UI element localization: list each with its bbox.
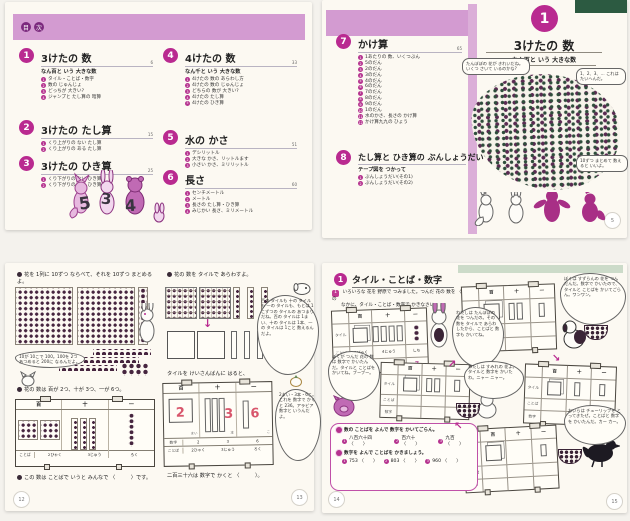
row-label-tile: タイル <box>381 374 398 394</box>
tile-hundreds-cell <box>480 441 507 466</box>
toc-right-and-opener-page: 7 かけ算 65 11あたりの 数、いくつぶん25のだん32のだん43のだん54… <box>322 0 627 238</box>
ten-flower-row-1 <box>93 349 151 355</box>
word-tens: 4じゅう <box>372 344 405 358</box>
digits-label: 数字 <box>164 439 183 445</box>
item-text: 八百六十四 〈 〉 <box>349 435 388 447</box>
exercise-2-label-row: 数字を よんで ことばを かきましょう。 <box>336 450 472 456</box>
toc-item: 2ぶんしょうだい(その2) <box>358 181 466 187</box>
banner-tab <box>40 396 51 402</box>
one-tiles <box>128 413 135 447</box>
ten-tile <box>247 287 254 319</box>
exercise-1-label: 数の ことばを よんで 数字を かいてごらん。 <box>344 427 437 433</box>
section-number-badge: 2 <box>19 120 34 135</box>
scanned-book-collage: 目 次 1 3けたの 数 6 なん百と いう 大きな数 1タイル・ことば・数字2… <box>0 0 630 521</box>
dog-head-illustration <box>293 281 311 295</box>
hundred-flower-grid-2 <box>77 287 135 345</box>
row-label-words: ことば <box>381 393 397 405</box>
col-tens: 十 <box>200 383 236 393</box>
board-tab <box>529 422 540 429</box>
section-page-number: 33 <box>288 60 297 65</box>
toc-header-char-1: 目 <box>21 22 31 32</box>
toc-header-char-2: 次 <box>34 22 44 32</box>
section-number-badge: 8 <box>336 150 351 165</box>
practice-right-page-number: 15 <box>606 493 623 510</box>
tiles-spread-pages: 花を 1列に 10ずつ ならべて、それを 10ずつ まとめるよ。 10が 10こ… <box>5 263 314 511</box>
hundreds-cell: 2 まい <box>163 393 200 438</box>
flower-bullet-icon <box>17 475 22 480</box>
lesson-number-badge: 1 <box>334 273 347 286</box>
word-ones: ろく <box>243 445 273 454</box>
section-number-badge: 4 <box>163 48 178 63</box>
item-text: 百六十 〈 〉 <box>401 435 432 447</box>
section-title: 4けたの 数 <box>185 50 235 65</box>
dandelion-field-illustration <box>470 71 622 192</box>
tile-tens-cell <box>421 375 446 395</box>
practice-left-page-number: 14 <box>328 491 345 508</box>
word-tens: 3じゅう <box>213 446 243 455</box>
hundred-tile <box>40 420 60 440</box>
toc-section-7: 7 かけ算 65 11あたりの 数、いくつぶん25のだん32のだん43のだん54… <box>358 36 462 126</box>
green-corner-block <box>575 0 627 13</box>
se-arrow-icon: ↘ <box>552 353 560 364</box>
toc-section-8: 8 たし算と ひき算の ぶんしょうだい 107 テープ図を つかって 1ぶんしょ… <box>358 152 466 187</box>
item-number-bullet-icon: 7 <box>358 91 363 96</box>
board-leg <box>485 489 491 495</box>
hundred-tile-grid-b <box>199 287 231 319</box>
col-tens: 十 <box>503 285 529 298</box>
section-title: 3けたの たし算 <box>41 122 111 137</box>
tile-hundreds-cell <box>541 377 566 399</box>
item-number-bullet-icon: 4 <box>358 73 363 78</box>
nw-arrow-icon: ↖ <box>454 421 462 432</box>
item-number-bullet-icon: 6 <box>358 85 363 90</box>
unit-ones: こ <box>267 429 270 434</box>
item-text: くり上がりの ある たし算 <box>48 147 101 153</box>
right-page-number: 13 <box>291 489 308 506</box>
speech-bubble-question: たんぽぽの 花が きれいだね。いくつ さいて いるのかな? <box>462 58 530 75</box>
item-number-bullet-icon: 2 <box>358 181 363 186</box>
item-number-bullet-icon: 3 <box>185 203 190 208</box>
word-hundreds: 2ひゃく <box>35 451 75 459</box>
item-number-bullet-icon: 2 <box>394 439 399 444</box>
down-arrow-icon: ↓ <box>203 317 212 330</box>
section-title: かけ算 <box>358 36 388 51</box>
section-page-number: 6 <box>146 60 153 65</box>
section-item-list: 1デシリットル2大きな かさ、リットルます3小さい かさ、ミリリットル <box>185 151 297 169</box>
board-caption: タイルを けいさんばんに はると、 <box>167 371 279 378</box>
section-title-row: 3けたの 数 6 <box>41 50 153 67</box>
hundred-tiles <box>353 327 369 343</box>
board-tab <box>394 359 405 365</box>
footer2-text: 二百三十六は 数字で かくと 〈 〉。 <box>167 473 263 479</box>
item-number-bullet-icon: 3 <box>185 89 190 94</box>
words-label: ことば <box>16 452 35 458</box>
item-number-bullet-icon: 2 <box>41 183 46 188</box>
ten-tile-plain <box>244 331 250 359</box>
toc-section-5: 5 水の かさ 51 1デシリットル2大きな かさ、リットルます3小さい かさ、… <box>185 132 297 169</box>
ten-tile <box>80 418 87 450</box>
tile-ones-cell <box>529 297 555 322</box>
item-number-bullet-icon: 11 <box>358 114 363 119</box>
item-number-bullet-icon: 4 <box>185 95 190 100</box>
section-title-row: たし算と ひき算の ぶんしょうだい 107 <box>358 152 466 165</box>
arabic-numeral-bubble: 2まい・3本・6こ。これを 数字で かくと 236。アラビア数字と いうんだよ。 <box>275 389 321 461</box>
hundred-tile-plain-b <box>197 331 225 359</box>
item-number-bullet-icon: 2 <box>358 61 363 66</box>
exercise-item: 3九百 〈 〉 <box>438 435 472 447</box>
section-title: 3けたの 数 <box>41 50 91 65</box>
board-tab <box>590 363 601 369</box>
exercise-item: 2百六十 〈 〉 <box>394 435 432 447</box>
section-title-row: 長さ 60 <box>185 172 297 189</box>
item-number-bullet-icon: 10 <box>358 108 363 113</box>
item-text: 753 〈 〉 <box>349 458 378 464</box>
tile-tens-cell <box>504 298 530 323</box>
loose-flowers <box>121 363 149 376</box>
unit-tens: 本 <box>230 430 233 435</box>
row-label-tile: タイル <box>525 376 542 397</box>
tile-tens-cell <box>371 321 405 345</box>
ten-tile-plain <box>212 398 219 432</box>
item-text: 960 〈 〉 <box>432 458 461 464</box>
item-text: みじかい 長さ、ミリメートル <box>192 209 253 215</box>
board-leg <box>245 462 251 468</box>
digits-tens: 3 <box>213 438 243 446</box>
count-caption: 花の 数は 百が 2つ、十が 3つ、一が 6つ。 <box>17 387 157 394</box>
section-number-badge: 7 <box>336 34 351 49</box>
speech-bubble-counting: 1、2、3、… これは たいへんだ。 <box>576 68 626 85</box>
item-number-bullet-icon: 3 <box>425 459 430 464</box>
banner-words-row: ことば 2ひゃく 3じゅう ろく <box>16 450 154 459</box>
opener-animals-illustration <box>474 192 614 226</box>
toc-left-page: 目 次 1 3けたの 数 6 なん百と いう 大きな数 1タイル・ことば・数字2… <box>5 2 312 230</box>
item-number-bullet-icon: 2 <box>41 83 46 88</box>
flower-exercise-icon <box>336 427 342 433</box>
section-title-row: かけ算 65 <box>358 36 462 53</box>
item-number-bullet-icon: 5 <box>358 79 363 84</box>
toc-item: 3小さい かさ、ミリリットル <box>185 163 297 169</box>
item-number-bullet-icon: 1 <box>342 459 347 464</box>
dog-speech-bubble: ぼくは すずらんの 花を つんだんだ。数字で かいたので、タイルと ことばを か… <box>560 273 626 325</box>
hundreds-tiles-cell <box>16 410 62 450</box>
exercise-2-items: 1753 〈 〉2803 〈 〉3960 〈 〉 <box>342 458 472 464</box>
section-title-row: 3けたの たし算 15 <box>41 122 153 139</box>
item-number-bullet-icon: 4 <box>41 95 46 100</box>
left-page-number: 12 <box>13 491 30 508</box>
item-text: ジャンプと たし算の 暗算 <box>48 95 101 101</box>
flower-bullet-icon <box>167 272 172 277</box>
section-page-number: 60 <box>288 182 297 187</box>
tens-cell: 3 本 <box>200 393 237 438</box>
toc-item: 4みじかい 長さ、ミリメートル <box>185 209 297 215</box>
illustration-number-3: 3 <box>100 190 112 209</box>
banner-leg <box>44 464 50 470</box>
item-number-bullet-icon: 2 <box>185 157 190 162</box>
col-tens: 十 <box>62 400 108 409</box>
ten-tile-plain <box>231 331 237 359</box>
ten-tile-plain <box>205 398 212 432</box>
flower-bullet-icon <box>17 387 22 392</box>
exercise-item: 1八百六十四 〈 〉 <box>342 435 388 447</box>
tulip-basket <box>558 449 582 464</box>
chapter-title: 3けたの 数 <box>484 37 604 54</box>
board-tiles-row: 2 まい 3 本 6 こ <box>163 392 272 438</box>
small-fox-illustration <box>19 371 37 387</box>
toc-section-6: 6 長さ 60 1センチメートル2メートル3長さの たし算・ひき算4みじかい 長… <box>185 172 297 215</box>
section-title-row: 4けたの 数 33 <box>185 50 297 67</box>
toc-section-4: 4 4けたの 数 33 なん千と いう 大きな数 14けたの 数の あらわし方2… <box>185 50 297 106</box>
footer-text: この 数は ことばで いうと みんなで 〈 〉です。 <box>24 475 151 481</box>
ones-cell: 6 こ <box>236 392 272 437</box>
item-number-bullet-icon: 1 <box>41 77 46 82</box>
row-label-words: ことば <box>524 397 540 410</box>
col-tens: 十 <box>566 366 591 379</box>
toc-section-2: 2 3けたの たし算 15 1くり上がりの ない たし算2くり上がりの ある た… <box>41 122 153 153</box>
tile-ones-cell <box>531 438 558 463</box>
board-words-row: ことば 2ひゃく 3じゅう ろく <box>164 444 272 455</box>
board-tab <box>538 361 549 367</box>
cat-speech-bubble: わたしは すみれの 花よ。タイルと 数字を かいたわ。ニャー ニャー。 <box>464 361 524 399</box>
rabbit-speech-bubble: わたしは たんぽぽの 花を つんだの。その 数を タイルで あらわしたから、こと… <box>452 307 504 367</box>
toc-item: 4ジャンプと たし算の 暗算 <box>41 95 153 101</box>
strawberry-icon <box>289 375 303 387</box>
col-tens: 十 <box>421 364 445 375</box>
exercise-1-label-row: 数の ことばを よんで 数字を かいてごらん。 <box>336 427 472 433</box>
item-number-bullet-icon: 3 <box>41 89 46 94</box>
banner-column-headers: 百 十 一 <box>16 400 154 410</box>
section-item-list: 11あたりの 数、いくつぶん25のだん32のだん43のだん54のだん66のだん7… <box>358 55 462 126</box>
item-number-bullet-icon: 9 <box>358 102 363 107</box>
exercise-2-label: 数字を よんで ことばを かきましょう。 <box>344 450 426 456</box>
exercise-1-items: 1八百六十四 〈 〉2百六十 〈 〉3九百 〈 〉 <box>342 435 472 447</box>
digits-hundreds: 2 <box>183 438 213 446</box>
item-number-bullet-icon: 3 <box>185 163 190 168</box>
board-tab <box>528 281 539 287</box>
toc-item: 54けたの ひき算 <box>185 101 297 107</box>
section-subtitle: なん千と いう 大きな数 <box>185 68 297 75</box>
item-number-bullet-icon: 2 <box>384 459 389 464</box>
rabbit-with-flowers-illustration <box>426 303 452 351</box>
section-title: たし算と ひき算の ぶんしょうだい <box>358 152 484 163</box>
ten-tile <box>71 418 78 450</box>
section-number-badge: 3 <box>19 156 34 171</box>
tile-units-bubble: 百の タイルも 十の タイルも 一の タイルも、もとは 1こずつの タイルの あ… <box>257 295 319 375</box>
row-label-digits: 数字 <box>524 410 540 423</box>
word-ones: ろく <box>114 451 154 459</box>
board-tab <box>181 379 192 385</box>
hundred-tile-plain-a <box>167 331 195 359</box>
section-page-number: 65 <box>453 46 462 51</box>
flower-bullet-icon <box>17 272 22 277</box>
caption-text: 花の 数は 百が 2つ、十が 3つ、一が 6つ。 <box>24 387 125 393</box>
toc-item: 2くり上がりの ある たし算 <box>41 147 153 153</box>
problem-line-1: いろいろな 花を 野原で つみました。つんだ 花の 数を 〈 〉の <box>332 290 471 302</box>
place-value-banner: 百 十 一 ことば 2ひゃく <box>15 399 155 467</box>
practice-spread-pages: 1 タイル・ことば・数字 1 いろいろな 花を 野原で つみました。つんだ 花の… <box>322 263 627 513</box>
section-item-list: 1タイル・ことば・数字2数の じゅんじょ3どっちが 大きい?4ジャンプと たし算… <box>41 77 153 101</box>
board-tab <box>239 378 250 384</box>
board-leg <box>444 417 450 423</box>
section-page-number: 51 <box>288 142 297 147</box>
banner-leg <box>116 464 122 470</box>
digit-ones: 6 <box>250 406 259 421</box>
item-text: 803 〈 〉 <box>391 458 420 464</box>
tile-tens-cell <box>505 439 532 464</box>
words-label: ことば <box>164 448 183 454</box>
item-text: かけ算九九の ひょう <box>365 120 408 126</box>
chapter-number-badge: 1 <box>531 5 558 32</box>
item-number-bullet-icon: 1 <box>185 191 190 196</box>
speech-bubble-hint: 10ずつ まとめて 数えると いいよ。 <box>576 155 628 172</box>
footer-line-right: 二百三十六は 数字で かくと 〈 〉。 <box>167 473 292 480</box>
item-number-bullet-icon: 1 <box>358 55 363 60</box>
intro-text: 花を 1列に 10ずつ ならべて、それを 10ずつ まとめるよ。 <box>17 272 152 285</box>
green-top-strip <box>458 265 623 273</box>
section-title: 長さ <box>185 172 205 187</box>
section-number-badge: 1 <box>19 48 34 63</box>
section-title-row: 水の かさ 51 <box>185 132 297 149</box>
item-number-bullet-icon: 2 <box>185 197 190 202</box>
section-subtitle: なん百と いう 大きな数 <box>41 68 153 75</box>
board-leg <box>532 347 538 353</box>
item-number-bullet-icon: 4 <box>185 209 190 214</box>
item-number-bullet-icon: 1 <box>41 177 46 182</box>
footer-line: この 数は ことばで いうと みんなで 〈 〉です。 <box>17 475 159 482</box>
toc-header-band <box>13 14 305 40</box>
problem-number-badge: 1 <box>332 290 339 297</box>
unit-hundreds: まい <box>191 430 198 435</box>
section-item-list: 1センチメートル2メートル3長さの たし算・ひき算4みじかい 長さ、ミリメートル <box>185 191 297 215</box>
toc-header-band-2 <box>326 10 468 36</box>
row-label-tile: タイル <box>332 323 349 347</box>
board-leg <box>534 486 540 492</box>
item-number-bullet-icon: 5 <box>185 101 190 106</box>
lesson-title: タイル・ことば・数字 <box>352 273 454 288</box>
tile-ones-cell <box>590 378 615 400</box>
board-leg <box>189 463 195 469</box>
item-number-bullet-icon: 1 <box>185 151 190 156</box>
climbing-rabbit-illustration <box>133 303 157 347</box>
intro-line-right: 花の 数を タイルで あらわすよ。 <box>167 272 287 279</box>
tile-hundreds-cell <box>348 322 371 346</box>
section-item-list: 14けたの 数の あらわし方24けたの 数の じゅんじょ3どちらの 数が 大きい… <box>185 77 297 106</box>
flower-basket <box>584 325 608 340</box>
section-subtitle: テープ図を つかって <box>358 166 466 173</box>
section-item-list: 1くり上がりの ない たし算2くり上がりの ある たし算 <box>41 141 153 153</box>
caption2-text: タイルを けいさんばんに はると、 <box>167 371 248 377</box>
intro-text-right: 花の 数を タイルで あらわすよ。 <box>174 272 252 278</box>
word-ones: しち <box>405 343 428 357</box>
board-tab <box>476 283 487 289</box>
item-number-bullet-icon: 1 <box>185 77 190 82</box>
section-item-list: 1ぶんしょうだい(その1)2ぶんしょうだい(その2) <box>358 175 466 187</box>
tile-tens-cell <box>566 378 591 400</box>
banner-tab <box>112 396 123 402</box>
one-tiles-plain <box>242 400 248 428</box>
item-number-bullet-icon: 1 <box>342 439 347 444</box>
ten-tile <box>89 418 96 450</box>
word-hundreds: 2ひゃく <box>183 446 213 455</box>
ones-tiles-cell <box>109 410 154 450</box>
keisanban-board: 百 十 一 2 まい 3 本 6 <box>162 381 273 467</box>
digit-tens: 3 <box>224 407 233 422</box>
pig-speech-bubble: ぼくが つんだ 花の 数は 数字で かいたんだ。タイルと ことばを かいてね。ブ… <box>328 351 380 401</box>
board-tab <box>477 425 488 432</box>
flower-exercise-icon <box>336 450 342 456</box>
ne-arrow-icon: ↗ <box>448 359 456 370</box>
ten-tile <box>233 287 240 319</box>
tile-ones-cell <box>404 320 427 344</box>
item-number-bullet-icon: 12 <box>358 120 363 125</box>
hundred-tile <box>18 420 38 440</box>
exercise-box: 数の ことばを よんで 数字を かいてごらん。 1八百六十四 〈 〉2百六十 〈… <box>330 423 478 491</box>
board-leg <box>396 415 402 421</box>
item-number-bullet-icon: 2 <box>185 83 190 88</box>
item-text: 九百 〈 〉 <box>445 435 472 447</box>
item-number-bullet-icon: 2 <box>41 147 46 152</box>
hundred-tile-grid-a <box>165 287 197 319</box>
section-title: 水の かさ <box>185 132 228 147</box>
toc-section-1: 1 3けたの 数 6 なん百と いう 大きな数 1タイル・ことば・数字2数の じ… <box>41 50 153 101</box>
item-number-bullet-icon: 1 <box>358 175 363 180</box>
item-number-bullet-icon: 1 <box>41 141 46 146</box>
board-tab <box>346 307 357 313</box>
intro-line: 花を 1列に 10ずつ ならべて、それを 10ずつ まとめるよ。 <box>17 272 159 286</box>
item-number-bullet-icon: 3 <box>438 439 443 444</box>
board-tab <box>400 305 411 311</box>
item-text: 小さい かさ、ミリリットル <box>192 163 249 169</box>
one-tiles <box>413 325 420 341</box>
exercise-item: 3960 〈 〉 <box>425 458 461 464</box>
illustration-number-4: 4 <box>124 196 136 216</box>
hundred-flower-grid-1 <box>15 287 73 345</box>
item-text: 4けたの ひき算 <box>192 101 224 107</box>
item-number-bullet-icon: 8 <box>358 97 363 102</box>
digit-hundreds: 2 <box>176 406 185 421</box>
section-number-badge: 5 <box>163 130 178 145</box>
toc-item: 12かけ算九九の ひょう <box>358 120 462 126</box>
item-text: ぶんしょうだい(その2) <box>365 181 413 187</box>
banner-tiles-row <box>16 410 154 450</box>
item-number-bullet-icon: 3 <box>358 67 363 72</box>
digits-ones: 6 <box>243 437 273 445</box>
exercise-item: 2803 〈 〉 <box>384 458 420 464</box>
row-label-digits: 数字 <box>380 405 396 417</box>
word-tens: 3じゅう <box>75 451 115 459</box>
tile-hundreds-cell <box>397 374 422 394</box>
section-page-number: 15 <box>144 132 153 137</box>
exercise-item: 1753 〈 〉 <box>342 458 378 464</box>
